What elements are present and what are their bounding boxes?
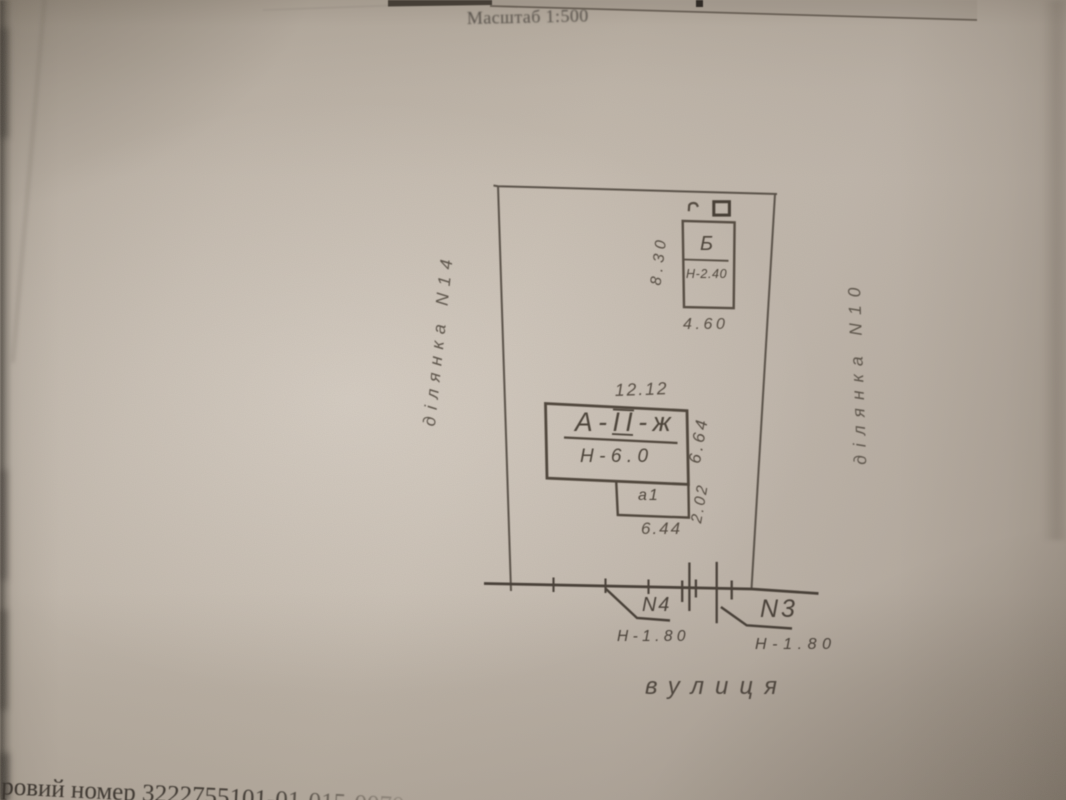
svg-text:12.12: 12.12: [614, 378, 668, 400]
svg-text:Н-2.40: Н-2.40: [686, 267, 727, 281]
svg-text:4.60: 4.60: [683, 316, 729, 333]
svg-text:Н-6.0: Н-6.0: [580, 446, 653, 467]
svg-text:N4: N4: [642, 594, 671, 616]
svg-text:а1: а1: [638, 487, 660, 504]
svg-text:Масштаб 1:500: Масштаб 1:500: [467, 5, 589, 28]
svg-text:Н-1.80: Н-1.80: [755, 636, 837, 653]
svg-text:вулиця: вулиця: [645, 673, 788, 700]
svg-text:N3: N3: [760, 595, 798, 623]
svg-text:6.44: 6.44: [641, 519, 682, 538]
svg-text:А-ІІ-ж: А-ІІ-ж: [573, 407, 676, 437]
svg-text:Б: Б: [700, 233, 713, 255]
svg-text:Н-1.80: Н-1.80: [617, 628, 690, 645]
